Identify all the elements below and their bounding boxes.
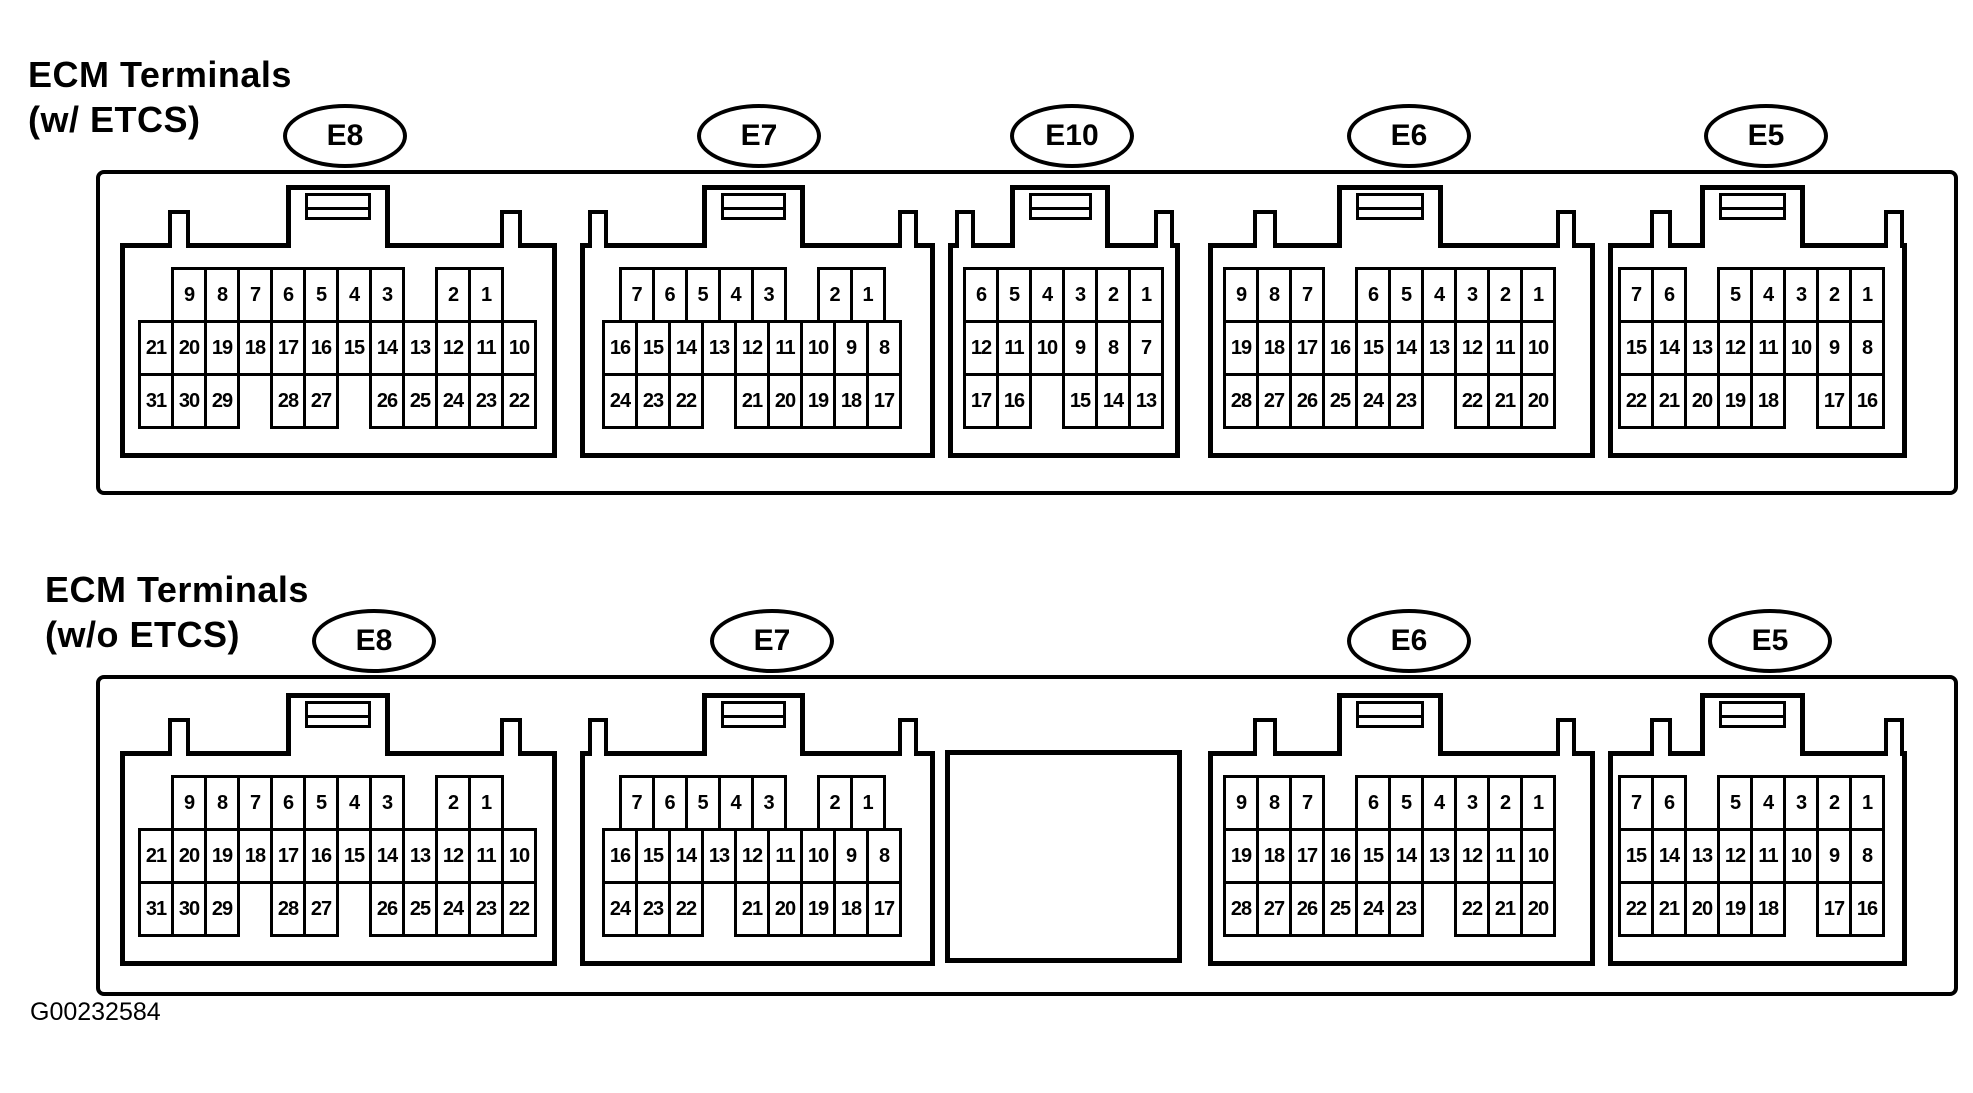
ecm-terminal-diagram-page: ECM Terminals(w/ ETCS)E89876543212120191… [0, 0, 1973, 1093]
terminal-row: 1615141312111098 [602, 320, 902, 376]
terminal-cell: 13 [1684, 828, 1720, 884]
terminal-cell: 22 [1618, 373, 1654, 429]
terminal-row: 7654321 [1618, 775, 1885, 831]
terminal-row: 31302928272625242322 [138, 881, 537, 937]
terminal-cell: 5 [303, 775, 339, 831]
connector-e8: 9876543212120191817161514131211103130292… [120, 185, 557, 458]
terminal-cell: 8 [866, 828, 902, 884]
terminal-gap [1421, 881, 1457, 937]
terminal-cell: 15 [1618, 828, 1654, 884]
terminal-cell: 20 [171, 828, 207, 884]
terminal-cell: 15 [1355, 828, 1391, 884]
terminal-cell: 29 [204, 881, 240, 937]
connector-bump [1650, 210, 1672, 248]
terminal-cell: 18 [237, 320, 273, 376]
terminal-cell: 19 [204, 320, 240, 376]
terminal-cell: 22 [1454, 373, 1490, 429]
terminal-cell: 21 [1651, 373, 1687, 429]
terminal-cell: 24 [1355, 881, 1391, 937]
blank-connector-box [945, 750, 1182, 963]
terminal-cell: 11 [1487, 320, 1523, 376]
terminal-cell: 6 [1651, 267, 1687, 323]
connector-bump [588, 718, 608, 756]
terminal-cell: 4 [336, 775, 372, 831]
terminal-row: 1716151413 [963, 373, 1164, 429]
terminal-cell: 23 [635, 373, 671, 429]
terminal-cell: 18 [1750, 881, 1786, 937]
terminal-cell: 27 [303, 881, 339, 937]
terminal-cell: 8 [1256, 775, 1292, 831]
terminal-cell: 15 [635, 828, 671, 884]
connector-latch-split [1032, 196, 1089, 210]
terminal-cell: 28 [1223, 881, 1259, 937]
connector-tab [1700, 693, 1805, 756]
terminal-cell: 22 [1454, 881, 1490, 937]
terminal-row: 987654321 [1223, 267, 1556, 323]
terminal-row: 22212019181716 [1618, 881, 1885, 937]
terminal-cell: 6 [963, 267, 999, 323]
connector-tab [286, 693, 390, 756]
connector-tab [702, 185, 805, 248]
terminal-cell: 2 [1816, 267, 1852, 323]
terminal-cell: 10 [800, 320, 836, 376]
terminal-cell: 22 [501, 881, 537, 937]
terminal-cell: 3 [1454, 267, 1490, 323]
terminal-cell: 19 [800, 881, 836, 937]
terminal-cell: 11 [767, 320, 803, 376]
terminal-cell: 23 [468, 881, 504, 937]
terminal-cell: 21 [1487, 881, 1523, 937]
terminal-row: 1615141312111098 [602, 828, 902, 884]
section-title-line1: ECM Terminals [45, 567, 309, 613]
terminal-cell: 13 [1421, 320, 1457, 376]
terminal-cell: 11 [468, 320, 504, 376]
connector-e7: 765432116151413121110982423222120191817 [580, 185, 935, 458]
terminal-cell: 5 [1388, 775, 1424, 831]
connector-bump [168, 718, 190, 756]
terminal-cell: 27 [1256, 373, 1292, 429]
terminal-cell: 6 [1355, 267, 1391, 323]
connector-latch [1029, 193, 1092, 220]
connector-oval-label: E8 [283, 104, 407, 168]
terminal-cell: 17 [270, 320, 306, 376]
terminal-cell: 17 [1289, 320, 1325, 376]
terminal-cell: 11 [1750, 828, 1786, 884]
terminal-cell: 8 [1095, 320, 1131, 376]
terminal-gap [701, 881, 737, 937]
connector-e5: 76543211514131211109822212019181716 [1608, 693, 1907, 966]
terminal-cell: 7 [619, 267, 655, 323]
terminal-cell: 20 [1520, 881, 1556, 937]
terminal-cell: 13 [1684, 320, 1720, 376]
terminal-cell: 26 [1289, 881, 1325, 937]
terminal-cell: 6 [1355, 775, 1391, 831]
terminal-row: 31302928272625242322 [138, 373, 537, 429]
terminal-cell: 3 [1783, 267, 1819, 323]
terminal-cell: 16 [1322, 828, 1358, 884]
terminal-row: 987654321 [171, 267, 504, 323]
terminal-cell: 7 [237, 267, 273, 323]
terminal-cell: 12 [435, 320, 471, 376]
terminal-cell: 16 [602, 828, 638, 884]
terminal-cell: 19 [1223, 828, 1259, 884]
terminal-cell: 18 [237, 828, 273, 884]
terminal-cell: 10 [501, 320, 537, 376]
connector-bump [1253, 718, 1277, 756]
terminal-gap [1684, 267, 1720, 323]
terminal-cell: 1 [468, 775, 504, 831]
terminal-cell: 4 [1421, 267, 1457, 323]
terminal-cell: 16 [602, 320, 638, 376]
terminal-cell: 15 [1355, 320, 1391, 376]
terminal-cell: 17 [270, 828, 306, 884]
terminal-cell: 7 [1289, 267, 1325, 323]
terminal-cell: 13 [402, 320, 438, 376]
terminal-cell: 19 [1717, 881, 1753, 937]
terminal-gap [1684, 775, 1720, 831]
terminal-gap [1783, 373, 1819, 429]
connector-oval-label: E5 [1708, 609, 1832, 673]
terminal-row: 282726252423222120 [1223, 373, 1556, 429]
terminal-row: 987654321 [171, 775, 504, 831]
terminal-cell: 3 [751, 775, 787, 831]
terminal-cell: 11 [1487, 828, 1523, 884]
terminal-gap [1029, 373, 1065, 429]
terminal-cell: 17 [1289, 828, 1325, 884]
terminal-cell: 15 [336, 320, 372, 376]
terminal-cell: 2 [817, 775, 853, 831]
terminal-cell: 9 [1062, 320, 1098, 376]
connector-tab [286, 185, 390, 248]
terminal-cell: 6 [270, 775, 306, 831]
terminal-gap [1322, 267, 1358, 323]
terminal-cell: 9 [1223, 267, 1259, 323]
connector-tab [1337, 693, 1443, 756]
connector-bump [955, 210, 975, 248]
terminal-cell: 23 [1388, 373, 1424, 429]
terminal-cell: 15 [635, 320, 671, 376]
terminal-cell: 11 [767, 828, 803, 884]
terminal-row: 19181716151413121110 [1223, 320, 1556, 376]
terminal-cell: 24 [435, 881, 471, 937]
terminal-row: 212019181716151413121110 [138, 828, 537, 884]
terminal-cell: 14 [668, 320, 704, 376]
terminal-cell: 27 [303, 373, 339, 429]
terminal-gap [1322, 775, 1358, 831]
terminal-cell: 15 [1062, 373, 1098, 429]
terminal-cell: 2 [435, 267, 471, 323]
connector-oval-label: E6 [1347, 104, 1471, 168]
terminal-cell: 3 [1454, 775, 1490, 831]
terminal-gap [336, 373, 372, 429]
terminal-cell: 9 [1816, 320, 1852, 376]
terminal-cell: 6 [1651, 775, 1687, 831]
terminal-row: 282726252423222120 [1223, 881, 1556, 937]
terminal-cell: 21 [1651, 881, 1687, 937]
terminal-cell: 4 [1750, 267, 1786, 323]
terminal-cell: 22 [668, 881, 704, 937]
terminal-cell: 20 [171, 320, 207, 376]
terminal-cell: 24 [602, 373, 638, 429]
terminal-cell: 11 [1750, 320, 1786, 376]
connector-bump [1650, 718, 1672, 756]
connector-latch [1719, 193, 1786, 220]
connector-bump [1556, 718, 1576, 756]
terminal-cell: 5 [1388, 267, 1424, 323]
connector-bump [168, 210, 190, 248]
connector-oval-label: E7 [697, 104, 821, 168]
connector-latch [305, 701, 371, 728]
terminal-cell: 1 [468, 267, 504, 323]
terminal-cell: 18 [1750, 373, 1786, 429]
terminal-cell: 4 [336, 267, 372, 323]
terminal-cell: 23 [635, 881, 671, 937]
terminal-cell: 7 [1618, 775, 1654, 831]
terminal-cell: 4 [1750, 775, 1786, 831]
terminal-cell: 12 [734, 320, 770, 376]
terminal-cell: 5 [685, 267, 721, 323]
terminal-cell: 4 [1029, 267, 1065, 323]
terminal-row: 19181716151413121110 [1223, 828, 1556, 884]
terminal-cell: 23 [468, 373, 504, 429]
terminal-cell: 9 [1816, 828, 1852, 884]
terminal-cell: 31 [138, 373, 174, 429]
terminal-cell: 25 [402, 373, 438, 429]
terminal-cell: 20 [1520, 373, 1556, 429]
terminal-gap [237, 373, 273, 429]
terminal-cell: 19 [800, 373, 836, 429]
terminal-cell: 14 [1388, 320, 1424, 376]
terminal-cell: 20 [767, 373, 803, 429]
terminal-row: 7654321 [1618, 267, 1885, 323]
terminal-cell: 21 [734, 373, 770, 429]
terminal-cell: 23 [1388, 881, 1424, 937]
terminal-cell: 17 [866, 881, 902, 937]
terminal-cell: 12 [963, 320, 999, 376]
terminal-cell: 13 [1128, 373, 1164, 429]
terminal-cell: 15 [1618, 320, 1654, 376]
terminal-cell: 1 [1128, 267, 1164, 323]
terminal-cell: 3 [1783, 775, 1819, 831]
terminal-cell: 9 [171, 775, 207, 831]
section-title-line1: ECM Terminals [28, 52, 292, 98]
terminal-cell: 5 [303, 267, 339, 323]
connector-bump [898, 718, 918, 756]
terminal-cell: 1 [1849, 267, 1885, 323]
terminal-cell: 1 [850, 267, 886, 323]
terminal-cell: 17 [1816, 373, 1852, 429]
connector-bump [1556, 210, 1576, 248]
terminal-cell: 11 [468, 828, 504, 884]
terminal-cell: 31 [138, 881, 174, 937]
terminal-cell: 7 [1289, 775, 1325, 831]
connector-bump [500, 718, 522, 756]
connector-latch [1356, 193, 1423, 220]
terminal-row: 654321 [963, 267, 1164, 323]
terminal-cell: 3 [369, 775, 405, 831]
connector-e8: 9876543212120191817161514131211103130292… [120, 693, 557, 966]
terminal-cell: 8 [1256, 267, 1292, 323]
terminal-cell: 25 [402, 881, 438, 937]
connector-bump [898, 210, 918, 248]
terminal-cell: 1 [1520, 267, 1556, 323]
terminal-cell: 25 [1322, 373, 1358, 429]
connector-oval-label: E6 [1347, 609, 1471, 673]
terminal-cell: 4 [718, 267, 754, 323]
terminal-cell: 8 [866, 320, 902, 376]
connector-latch [1719, 701, 1786, 728]
terminal-row: 7654321 [619, 267, 886, 323]
terminal-row: 212019181716151413121110 [138, 320, 537, 376]
section-title-line2: (w/o ETCS) [45, 612, 240, 658]
terminal-cell: 12 [734, 828, 770, 884]
connector-oval-label: E5 [1704, 104, 1828, 168]
terminal-cell: 2 [435, 775, 471, 831]
terminal-cell: 4 [718, 775, 754, 831]
terminal-cell: 28 [1223, 373, 1259, 429]
connector-e10: 6543211211109871716151413 [948, 185, 1180, 458]
terminal-row: 22212019181716 [1618, 373, 1885, 429]
terminal-gap [784, 775, 820, 831]
terminal-cell: 18 [833, 881, 869, 937]
terminal-cell: 24 [1355, 373, 1391, 429]
terminal-cell: 16 [1849, 881, 1885, 937]
terminal-gap [701, 373, 737, 429]
terminal-cell: 2 [1487, 775, 1523, 831]
terminal-cell: 10 [1520, 828, 1556, 884]
terminal-cell: 14 [1651, 320, 1687, 376]
terminal-cell: 12 [1717, 320, 1753, 376]
connector-bump [1253, 210, 1277, 248]
terminal-cell: 13 [701, 828, 737, 884]
terminal-cell: 26 [369, 881, 405, 937]
terminal-cell: 9 [171, 267, 207, 323]
terminal-cell: 18 [1256, 828, 1292, 884]
terminal-cell: 13 [402, 828, 438, 884]
terminal-gap [784, 267, 820, 323]
terminal-cell: 15 [336, 828, 372, 884]
terminal-cell: 30 [171, 373, 207, 429]
terminal-cell: 8 [204, 267, 240, 323]
terminal-cell: 20 [1684, 373, 1720, 429]
terminal-cell: 21 [138, 828, 174, 884]
terminal-gap [1783, 881, 1819, 937]
terminal-cell: 13 [701, 320, 737, 376]
connector-e6: 9876543211918171615141312111028272625242… [1208, 185, 1595, 458]
terminal-cell: 19 [1717, 373, 1753, 429]
terminal-cell: 16 [1322, 320, 1358, 376]
connector-latch [721, 193, 786, 220]
terminal-cell: 5 [1717, 267, 1753, 323]
terminal-cell: 5 [1717, 775, 1753, 831]
terminal-cell: 16 [303, 828, 339, 884]
terminal-cell: 21 [138, 320, 174, 376]
connector-latch-split [1359, 196, 1420, 210]
terminal-gap [402, 775, 438, 831]
terminal-cell: 9 [833, 828, 869, 884]
terminal-row: 987654321 [1223, 775, 1556, 831]
terminal-cell: 21 [1487, 373, 1523, 429]
terminal-cell: 14 [668, 828, 704, 884]
terminal-cell: 22 [1618, 881, 1654, 937]
terminal-cell: 17 [1816, 881, 1852, 937]
terminal-cell: 14 [1651, 828, 1687, 884]
section-title-line2: (w/ ETCS) [28, 97, 201, 143]
terminal-cell: 12 [435, 828, 471, 884]
terminal-cell: 7 [1128, 320, 1164, 376]
terminal-cell: 7 [237, 775, 273, 831]
figure-id: G00232584 [30, 998, 161, 1027]
connector-latch [721, 701, 786, 728]
terminal-cell: 28 [270, 881, 306, 937]
terminal-cell: 28 [270, 373, 306, 429]
terminal-cell: 10 [1520, 320, 1556, 376]
connector-bump [1154, 210, 1174, 248]
terminal-cell: 6 [652, 775, 688, 831]
terminal-cell: 18 [833, 373, 869, 429]
terminal-cell: 2 [1095, 267, 1131, 323]
terminal-cell: 12 [1454, 320, 1490, 376]
terminal-cell: 12 [1454, 828, 1490, 884]
terminal-cell: 16 [996, 373, 1032, 429]
terminal-cell: 14 [369, 828, 405, 884]
terminal-cell: 1 [1520, 775, 1556, 831]
terminal-cell: 19 [204, 828, 240, 884]
terminal-cell: 20 [767, 881, 803, 937]
terminal-row: 15141312111098 [1618, 320, 1885, 376]
connector-e5: 76543211514131211109822212019181716 [1608, 185, 1907, 458]
terminal-cell: 10 [1783, 320, 1819, 376]
terminal-cell: 10 [1783, 828, 1819, 884]
connector-latch [305, 193, 371, 220]
terminal-cell: 27 [1256, 881, 1292, 937]
terminal-cell: 8 [1849, 320, 1885, 376]
terminal-cell: 4 [1421, 775, 1457, 831]
terminal-cell: 12 [1717, 828, 1753, 884]
connector-latch [1356, 701, 1423, 728]
terminal-cell: 16 [1849, 373, 1885, 429]
terminal-cell: 5 [996, 267, 1032, 323]
terminal-cell: 22 [668, 373, 704, 429]
terminal-cell: 13 [1421, 828, 1457, 884]
connector-latch-split [308, 196, 368, 210]
terminal-cell: 2 [1816, 775, 1852, 831]
terminal-cell: 18 [1256, 320, 1292, 376]
terminal-cell: 1 [1849, 775, 1885, 831]
connector-bump [1884, 210, 1904, 248]
connector-latch-split [724, 196, 783, 210]
connector-oval-label: E10 [1010, 104, 1134, 168]
terminal-cell: 30 [171, 881, 207, 937]
connector-bump [1884, 718, 1904, 756]
terminal-cell: 21 [734, 881, 770, 937]
terminal-cell: 7 [619, 775, 655, 831]
terminal-cell: 9 [833, 320, 869, 376]
terminal-cell: 20 [1684, 881, 1720, 937]
terminal-cell: 22 [501, 373, 537, 429]
terminal-cell: 26 [369, 373, 405, 429]
connector-oval-label: E8 [312, 609, 436, 673]
terminal-cell: 29 [204, 373, 240, 429]
terminal-cell: 14 [369, 320, 405, 376]
connector-tab [1010, 185, 1110, 248]
connector-tab [1700, 185, 1805, 248]
terminal-cell: 1 [850, 775, 886, 831]
terminal-gap [402, 267, 438, 323]
terminal-cell: 8 [1849, 828, 1885, 884]
terminal-cell: 8 [204, 775, 240, 831]
terminal-row: 15141312111098 [1618, 828, 1885, 884]
